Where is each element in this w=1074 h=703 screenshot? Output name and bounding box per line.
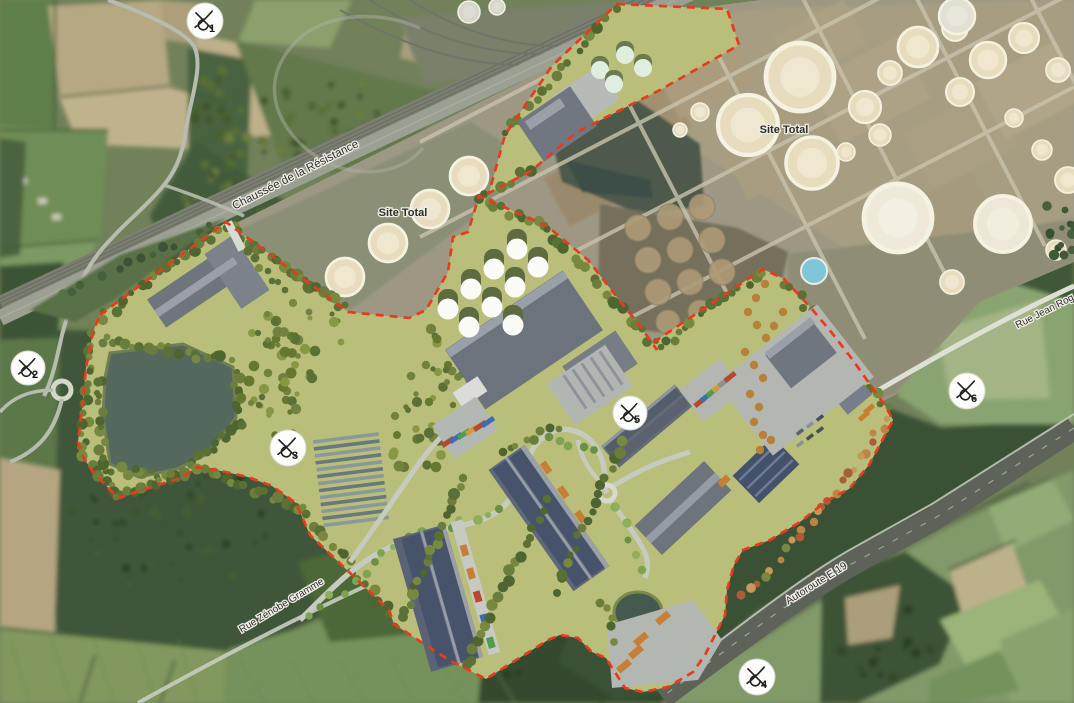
svg-text:3: 3 (292, 450, 298, 462)
svg-text:2: 2 (32, 369, 38, 381)
svg-text:Site Total: Site Total (760, 124, 809, 136)
svg-text:Site Total: Site Total (379, 207, 428, 219)
svg-text:4: 4 (761, 679, 768, 691)
svg-text:5: 5 (634, 414, 640, 426)
svg-text:1: 1 (209, 23, 215, 35)
svg-text:6: 6 (971, 393, 977, 405)
